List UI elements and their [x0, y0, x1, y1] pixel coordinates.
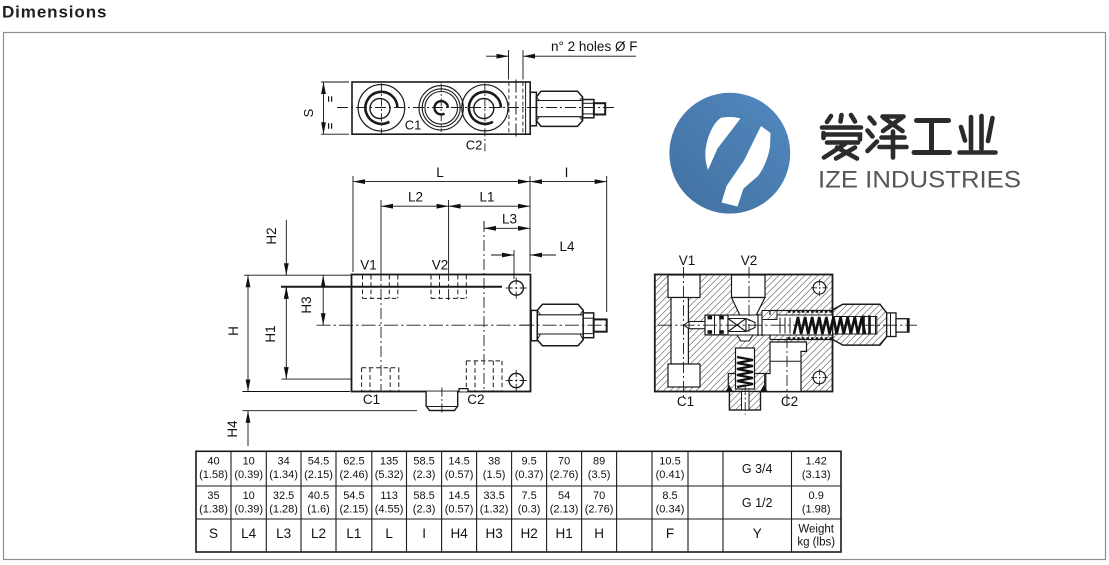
svg-text:C2: C2 [467, 392, 484, 407]
svg-text:V2: V2 [432, 258, 449, 273]
svg-text:H2: H2 [264, 227, 279, 244]
svg-text:70: 70 [558, 456, 570, 468]
svg-text:70: 70 [593, 490, 605, 502]
svg-text:10: 10 [243, 456, 255, 468]
svg-text:L2: L2 [408, 190, 423, 205]
svg-text:(1.98): (1.98) [802, 504, 831, 516]
svg-text:I: I [422, 526, 426, 541]
svg-text:V1: V1 [360, 258, 377, 273]
svg-text:58.5: 58.5 [413, 490, 434, 502]
svg-text:H1: H1 [263, 325, 278, 342]
svg-text:(1.58): (1.58) [199, 469, 228, 481]
svg-text:L1: L1 [479, 190, 494, 205]
svg-text:L4: L4 [241, 526, 257, 541]
svg-text:S: S [301, 108, 316, 117]
svg-text:(0.3): (0.3) [518, 504, 541, 516]
svg-text:(3.5): (3.5) [588, 469, 611, 481]
svg-text:(1.5): (1.5) [483, 469, 506, 481]
svg-text:V2: V2 [741, 253, 758, 268]
svg-text:C2: C2 [781, 394, 798, 409]
svg-text:14.5: 14.5 [448, 456, 469, 468]
svg-text:=: = [325, 96, 337, 102]
svg-text:9.5: 9.5 [521, 456, 536, 468]
svg-text:(2.46): (2.46) [340, 469, 369, 481]
svg-text:(0.57): (0.57) [445, 504, 474, 516]
svg-text:14.5: 14.5 [448, 490, 469, 502]
svg-text:38: 38 [488, 456, 500, 468]
svg-text:54.5: 54.5 [343, 490, 364, 502]
svg-text:V1: V1 [679, 253, 696, 268]
svg-text:IZE INDUSTRIES: IZE INDUSTRIES [818, 167, 1021, 194]
svg-text:H1: H1 [555, 526, 572, 541]
svg-text:40: 40 [207, 456, 219, 468]
svg-text:S: S [209, 526, 218, 541]
svg-text:54: 54 [558, 490, 570, 502]
svg-text:L2: L2 [311, 526, 326, 541]
svg-text:=: = [325, 123, 337, 129]
svg-text:(4.55): (4.55) [375, 504, 404, 516]
svg-text:Dimensions: Dimensions [2, 2, 107, 21]
svg-text:135: 135 [380, 456, 398, 468]
svg-text:(1.28): (1.28) [269, 504, 298, 516]
svg-text:(0.41): (0.41) [656, 469, 685, 481]
svg-text:8.5: 8.5 [662, 490, 677, 502]
svg-text:(0.37): (0.37) [515, 469, 544, 481]
svg-text:58.5: 58.5 [413, 456, 434, 468]
svg-text:54.5: 54.5 [308, 456, 329, 468]
svg-text:L: L [385, 526, 393, 541]
svg-text:L3: L3 [502, 212, 517, 227]
svg-text:H: H [594, 526, 604, 541]
svg-text:89: 89 [593, 456, 605, 468]
svg-text:Y: Y [753, 526, 762, 541]
svg-text:I: I [565, 165, 569, 180]
svg-text:(0.34): (0.34) [656, 504, 685, 516]
svg-text:L3: L3 [276, 526, 291, 541]
svg-text:H3: H3 [485, 526, 502, 541]
svg-text:(1.34): (1.34) [269, 469, 298, 481]
svg-text:(2.3): (2.3) [413, 469, 436, 481]
svg-text:(0.57): (0.57) [445, 469, 474, 481]
svg-text:H4: H4 [225, 420, 240, 438]
svg-text:H4: H4 [450, 526, 468, 541]
svg-text:(5.32): (5.32) [375, 469, 404, 481]
svg-text:C1: C1 [363, 392, 380, 407]
svg-text:L4: L4 [559, 239, 575, 254]
svg-text:(2.13): (2.13) [550, 504, 579, 516]
svg-text:(1.32): (1.32) [480, 504, 509, 516]
svg-text:L: L [436, 165, 444, 180]
svg-text:C1: C1 [405, 118, 422, 133]
svg-text:34: 34 [277, 456, 289, 468]
svg-text:G 1/2: G 1/2 [742, 496, 773, 510]
svg-text:(2.76): (2.76) [585, 504, 614, 516]
svg-text:32.5: 32.5 [273, 490, 294, 502]
svg-text:H3: H3 [299, 296, 314, 313]
svg-text:62.5: 62.5 [343, 456, 364, 468]
svg-text:(1.38): (1.38) [199, 504, 228, 516]
svg-text:Weight: Weight [798, 524, 834, 536]
svg-text:10.5: 10.5 [659, 456, 680, 468]
svg-text:H2: H2 [520, 526, 537, 541]
svg-text:n° 2 holes Ø F: n° 2 holes Ø F [551, 39, 637, 54]
svg-text:(2.3): (2.3) [413, 504, 436, 516]
svg-text:F: F [666, 526, 674, 541]
svg-text:1.42: 1.42 [805, 456, 826, 468]
svg-text:H: H [226, 326, 241, 336]
svg-text:35: 35 [207, 490, 219, 502]
svg-text:(1.6): (1.6) [307, 504, 330, 516]
svg-text:(2.76): (2.76) [550, 469, 579, 481]
svg-text:33.5: 33.5 [483, 490, 504, 502]
svg-text:L1: L1 [346, 526, 361, 541]
svg-text:113: 113 [380, 490, 398, 502]
svg-text:(0.39): (0.39) [234, 504, 263, 516]
svg-text:(2.15): (2.15) [340, 504, 369, 516]
svg-text:G 3/4: G 3/4 [742, 462, 773, 476]
svg-text:kg (lbs): kg (lbs) [797, 537, 835, 549]
svg-text:C2: C2 [466, 138, 483, 153]
svg-text:C1: C1 [677, 394, 694, 409]
svg-text:(2.15): (2.15) [304, 469, 333, 481]
svg-text:40.5: 40.5 [308, 490, 329, 502]
svg-text:7.5: 7.5 [521, 490, 536, 502]
svg-text:10: 10 [243, 490, 255, 502]
svg-text:(0.39): (0.39) [234, 469, 263, 481]
svg-text:0.9: 0.9 [809, 490, 824, 502]
svg-text:(3.13): (3.13) [802, 469, 831, 481]
